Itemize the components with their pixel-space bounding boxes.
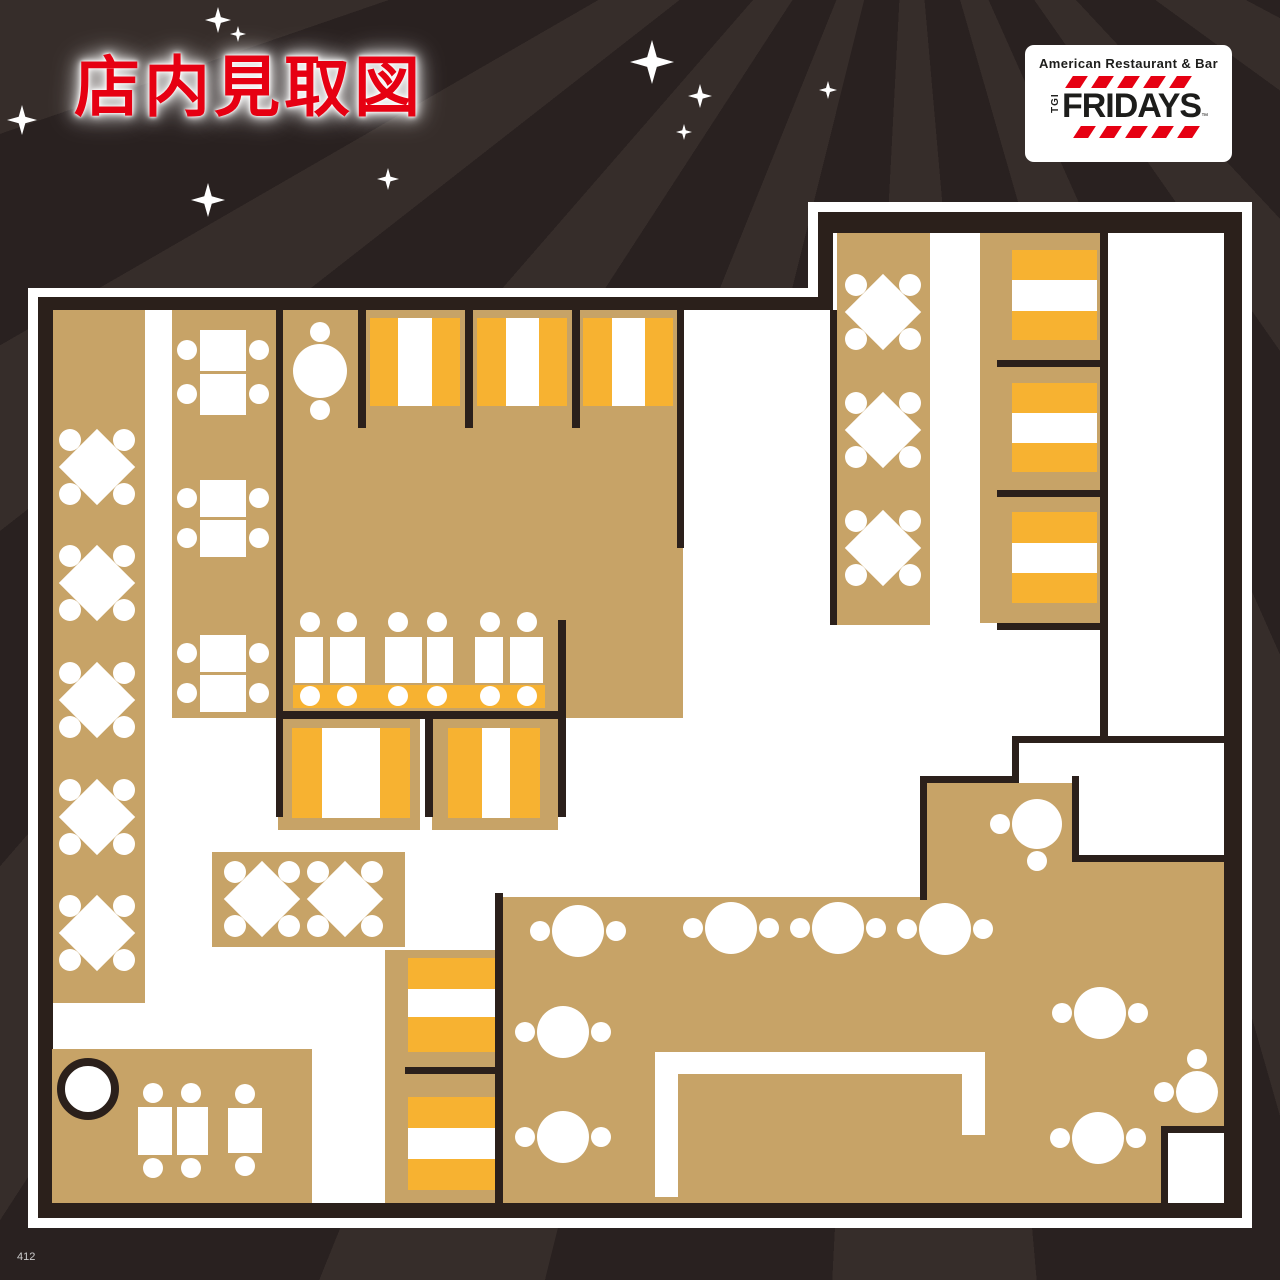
table xyxy=(200,480,246,517)
table xyxy=(295,637,323,683)
chair xyxy=(517,612,537,632)
round-table xyxy=(552,905,604,957)
chair xyxy=(249,683,269,703)
chair xyxy=(177,384,197,404)
chair xyxy=(790,918,810,938)
chair xyxy=(1128,1003,1148,1023)
booth-table xyxy=(612,318,645,406)
round-table xyxy=(1176,1071,1218,1113)
logo-stripe-icon xyxy=(1151,126,1174,138)
chair xyxy=(899,564,921,586)
table xyxy=(427,637,453,683)
chair xyxy=(1027,851,1047,871)
chair xyxy=(480,612,500,632)
table xyxy=(385,637,422,683)
dining-bench xyxy=(293,685,545,708)
round-table-outlined xyxy=(57,1058,119,1120)
logo-fridays: FRIDAYS xyxy=(1062,87,1201,126)
chair xyxy=(1052,1003,1072,1023)
wall-br-left xyxy=(495,893,503,1203)
chair xyxy=(990,814,1010,834)
chair xyxy=(249,488,269,508)
table xyxy=(475,637,503,683)
wall-right-strip-left xyxy=(830,310,837,625)
counter xyxy=(655,1052,985,1074)
page-number: 412 xyxy=(17,1251,35,1263)
logo-trademark: ™ xyxy=(1201,113,1208,120)
logo-tagline: American Restaurant & Bar xyxy=(1039,56,1218,71)
table xyxy=(200,635,246,672)
round-table xyxy=(812,902,864,954)
wall-step-b xyxy=(920,776,1019,783)
round-table xyxy=(1072,1112,1124,1164)
chair xyxy=(235,1156,255,1176)
chair xyxy=(427,686,447,706)
chair xyxy=(1050,1128,1070,1148)
wall-room-left xyxy=(1072,776,1079,862)
chair xyxy=(177,643,197,663)
wall-lower-booth-right xyxy=(558,620,566,817)
round-table xyxy=(537,1006,589,1058)
round-table xyxy=(293,344,347,398)
chair xyxy=(177,528,197,548)
logo-stripe-icon xyxy=(1177,126,1200,138)
chair xyxy=(300,686,320,706)
chair xyxy=(249,643,269,663)
chair xyxy=(337,612,357,632)
chair xyxy=(1154,1082,1174,1102)
chair xyxy=(113,483,135,505)
chair xyxy=(310,322,330,342)
chair xyxy=(249,528,269,548)
booth-table xyxy=(398,318,432,406)
wall-right-booth-bottom xyxy=(997,623,1108,630)
chair xyxy=(530,921,550,941)
chair xyxy=(113,716,135,738)
chair xyxy=(143,1158,163,1178)
booth-table xyxy=(482,728,510,818)
table xyxy=(138,1107,172,1155)
chair xyxy=(249,340,269,360)
chair xyxy=(866,918,886,938)
chair xyxy=(388,686,408,706)
round-table xyxy=(1012,799,1062,849)
chair xyxy=(759,918,779,938)
chair xyxy=(515,1022,535,1042)
chair xyxy=(181,1083,201,1103)
chair xyxy=(113,833,135,855)
chair xyxy=(480,686,500,706)
chair xyxy=(1126,1128,1146,1148)
chair xyxy=(517,686,537,706)
chair xyxy=(683,918,703,938)
wall-booth-div-3 xyxy=(572,310,580,428)
table xyxy=(200,520,246,557)
chair xyxy=(899,328,921,350)
wall-bottom-booth-div xyxy=(405,1067,502,1074)
page-title-text: 店内見取図 xyxy=(74,50,424,124)
logo-mark: TGI FRIDAYS ™ xyxy=(1049,76,1208,138)
counter xyxy=(655,1052,678,1197)
table xyxy=(177,1107,208,1155)
booth-table xyxy=(506,318,539,406)
chair xyxy=(181,1158,201,1178)
logo-stripes-bottom xyxy=(1077,126,1196,138)
logo-stripe-icon xyxy=(1099,126,1122,138)
chair xyxy=(310,400,330,420)
booth-table xyxy=(1012,413,1097,443)
chair xyxy=(278,915,300,937)
tgi-fridays-logo: American Restaurant & Bar TGI FRIDAYS ™ xyxy=(1025,45,1232,162)
table xyxy=(330,637,365,683)
table xyxy=(510,637,543,683)
booth-table xyxy=(1012,280,1097,311)
wall-right-booth-div-1 xyxy=(997,360,1100,367)
round-table xyxy=(1074,987,1126,1039)
wall-step-c xyxy=(920,776,927,900)
logo-tgi: TGI xyxy=(1050,100,1061,113)
chair xyxy=(591,1022,611,1042)
wall-corner-room-left xyxy=(1161,1126,1168,1203)
chair xyxy=(177,340,197,360)
chair xyxy=(177,488,197,508)
chair xyxy=(591,1127,611,1147)
wall-central-bottom xyxy=(276,711,565,719)
bottom-right-shelf xyxy=(1072,862,1224,900)
chair xyxy=(300,612,320,632)
round-table xyxy=(537,1111,589,1163)
logo-wordmark: TGI FRIDAYS ™ xyxy=(1049,88,1208,124)
chair xyxy=(515,1127,535,1147)
wall-booth-div-2 xyxy=(465,310,473,428)
corner-room xyxy=(1168,1133,1224,1203)
round-table xyxy=(919,903,971,955)
bottom-right-main xyxy=(503,897,1224,1203)
chair xyxy=(427,612,447,632)
table xyxy=(200,374,246,415)
chair xyxy=(973,919,993,939)
counter xyxy=(962,1052,985,1135)
wall-corner-room-top xyxy=(1161,1126,1224,1133)
floor-plan xyxy=(0,0,1280,1280)
wall-booth-div-1 xyxy=(358,310,366,428)
chair xyxy=(1187,1049,1207,1069)
chair xyxy=(249,384,269,404)
chair xyxy=(143,1083,163,1103)
chair xyxy=(113,599,135,621)
chair xyxy=(897,919,917,939)
chair xyxy=(606,921,626,941)
booth-table xyxy=(408,989,495,1017)
chair xyxy=(113,949,135,971)
booth-table xyxy=(322,728,380,818)
chair xyxy=(337,686,357,706)
chair xyxy=(388,612,408,632)
logo-stripe-icon xyxy=(1073,126,1096,138)
chair xyxy=(177,683,197,703)
wall-room-bottom xyxy=(1072,855,1224,862)
chair xyxy=(899,446,921,468)
logo-stripe-icon xyxy=(1125,126,1148,138)
wall-right-booth-div-2 xyxy=(997,490,1100,497)
booth-table xyxy=(408,1128,495,1159)
wall-lower-booth-mid xyxy=(425,711,433,817)
chair xyxy=(361,915,383,937)
page-title: 店内見取図 xyxy=(74,54,424,120)
wall-right-booth-right xyxy=(1100,227,1108,743)
wall-central-right xyxy=(677,310,684,548)
chair xyxy=(235,1084,255,1104)
wall-mid-right xyxy=(1012,736,1224,743)
wall-strip-divider xyxy=(276,310,283,817)
table xyxy=(200,675,246,712)
table xyxy=(200,330,246,371)
round-table xyxy=(705,902,757,954)
booth-table xyxy=(1012,543,1097,573)
table xyxy=(228,1108,262,1153)
